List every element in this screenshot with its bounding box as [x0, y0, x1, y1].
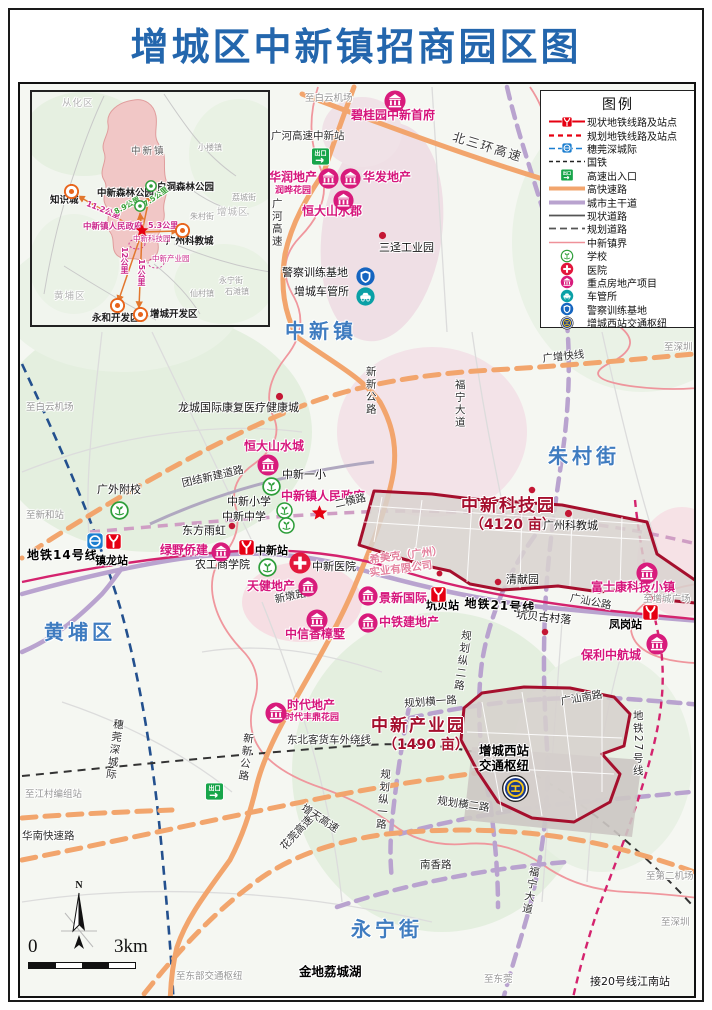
greenpark-icon	[145, 180, 157, 192]
svg-text:出口: 出口	[208, 785, 220, 793]
road-existing-swatch-icon	[547, 209, 587, 222]
building-icon	[211, 542, 231, 562]
dot-icon	[493, 577, 503, 587]
building-icon	[298, 577, 318, 597]
national-rail-swatch-icon	[547, 155, 587, 168]
main-map: 至白云机场碧桂园中新首府广河高速中新站北三环高速华润地产润晔花园华发地产恒大山水…	[18, 82, 696, 998]
dot-icon	[527, 485, 537, 495]
legend-item: 重点房地产项目	[547, 276, 689, 289]
dmv-icon	[356, 287, 375, 306]
page: 增城区中新镇招商园区图	[0, 0, 712, 1010]
legend-item: 现状道路	[547, 209, 689, 222]
boundary-swatch-icon	[547, 236, 587, 249]
ringO-icon	[175, 223, 190, 238]
school-icon	[278, 517, 295, 534]
legend-item: 穗莞深城际	[547, 142, 689, 155]
dot-icon	[227, 521, 237, 531]
legend-item: 现状地铁线路及站点	[547, 115, 689, 128]
legend-item: 增城西站交通枢纽	[547, 316, 689, 329]
exit-icon: 出口	[311, 147, 330, 166]
expressway-swatch-icon	[547, 182, 587, 195]
svg-text:出口: 出口	[563, 170, 571, 177]
building-icon	[265, 702, 287, 724]
greenpark-icon	[134, 200, 146, 212]
metrob-icon	[86, 532, 104, 550]
hub-icon	[502, 775, 529, 802]
page-title: 增城区中新镇招商园区图	[0, 16, 712, 71]
school-swatch-icon	[547, 249, 587, 262]
metro-existing-swatch-icon	[547, 115, 587, 128]
building-icon	[358, 586, 378, 606]
building-icon	[358, 613, 378, 633]
building-icon	[333, 190, 354, 211]
dot-icon	[563, 508, 574, 519]
building-icon	[646, 633, 668, 655]
north-label: N	[57, 880, 101, 891]
legend-item: 国铁	[547, 155, 689, 168]
legend-item: 中新镇界	[547, 236, 689, 249]
metro-planned-swatch-icon	[547, 129, 587, 142]
police-swatch-icon	[547, 303, 587, 316]
scale-end: 3km	[114, 936, 148, 958]
ringO-icon	[133, 307, 148, 322]
legend-item: 学校	[547, 249, 689, 262]
legend-item: 规划地铁线路及站点	[547, 128, 689, 141]
legend-item: 规划道路	[547, 222, 689, 235]
school-icon	[262, 477, 281, 496]
realestate-swatch-icon	[547, 276, 587, 289]
dot-icon	[540, 627, 550, 637]
legend-item: 城市主干道	[547, 195, 689, 208]
metro-icon	[642, 604, 659, 621]
ringO-icon	[110, 298, 125, 313]
dot-icon	[435, 569, 444, 578]
legend: 图例 现状地铁线路及站点规划地铁线路及站点穗莞深城际国铁出口高速出入口高快速路城…	[540, 90, 696, 328]
road-planned-swatch-icon	[547, 222, 587, 235]
legend-item: 出口高速出入口	[547, 169, 689, 182]
building-icon	[318, 168, 339, 189]
legend-title: 图例	[547, 94, 689, 114]
inset-icons-layer	[30, 90, 270, 327]
legend-item: 车管所	[547, 289, 689, 302]
metro-icon	[105, 533, 122, 550]
inset-map: 从化区中新镇小楼镇荔城街朱村街增城区知识城中新森林公园白洞森林公园11.2公里8…	[30, 90, 270, 327]
building-icon	[636, 562, 658, 584]
school-icon	[258, 558, 277, 577]
building-icon	[257, 454, 279, 476]
legend-item: 警察训练基地	[547, 302, 689, 315]
legend-item: 高快速路	[547, 182, 689, 195]
legend-rows: 现状地铁线路及站点规划地铁线路及站点穗莞深城际国铁出口高速出入口高快速路城市主干…	[547, 115, 689, 329]
legend-item-label: 增城西站交通枢纽	[587, 315, 667, 330]
school-icon	[110, 501, 129, 520]
dot-icon	[377, 230, 388, 241]
arterial-swatch-icon	[547, 196, 587, 209]
ringO-icon	[64, 184, 79, 199]
hospital-icon	[289, 552, 311, 574]
hub-swatch-icon	[547, 316, 587, 329]
scale-bar: 0 3km	[28, 936, 158, 969]
building-icon	[384, 90, 406, 112]
metro-icon	[430, 586, 447, 603]
scale-bar-segments	[28, 962, 136, 969]
police-icon	[356, 267, 375, 286]
legend-item: 医院	[547, 262, 689, 275]
svg-text:出口: 出口	[314, 150, 326, 158]
building-icon	[306, 609, 328, 631]
exit-icon: 出口	[205, 782, 224, 801]
dot-icon	[274, 391, 285, 402]
star-icon	[311, 504, 328, 521]
scale-start: 0	[28, 936, 38, 958]
dmv-swatch-icon	[547, 289, 587, 302]
intercity-swatch-icon	[547, 142, 587, 155]
exit-swatch-icon: 出口	[547, 169, 587, 182]
building-icon	[340, 168, 361, 189]
hospital-swatch-icon	[547, 262, 587, 275]
star-icon	[135, 223, 149, 237]
metro-icon	[238, 539, 255, 556]
